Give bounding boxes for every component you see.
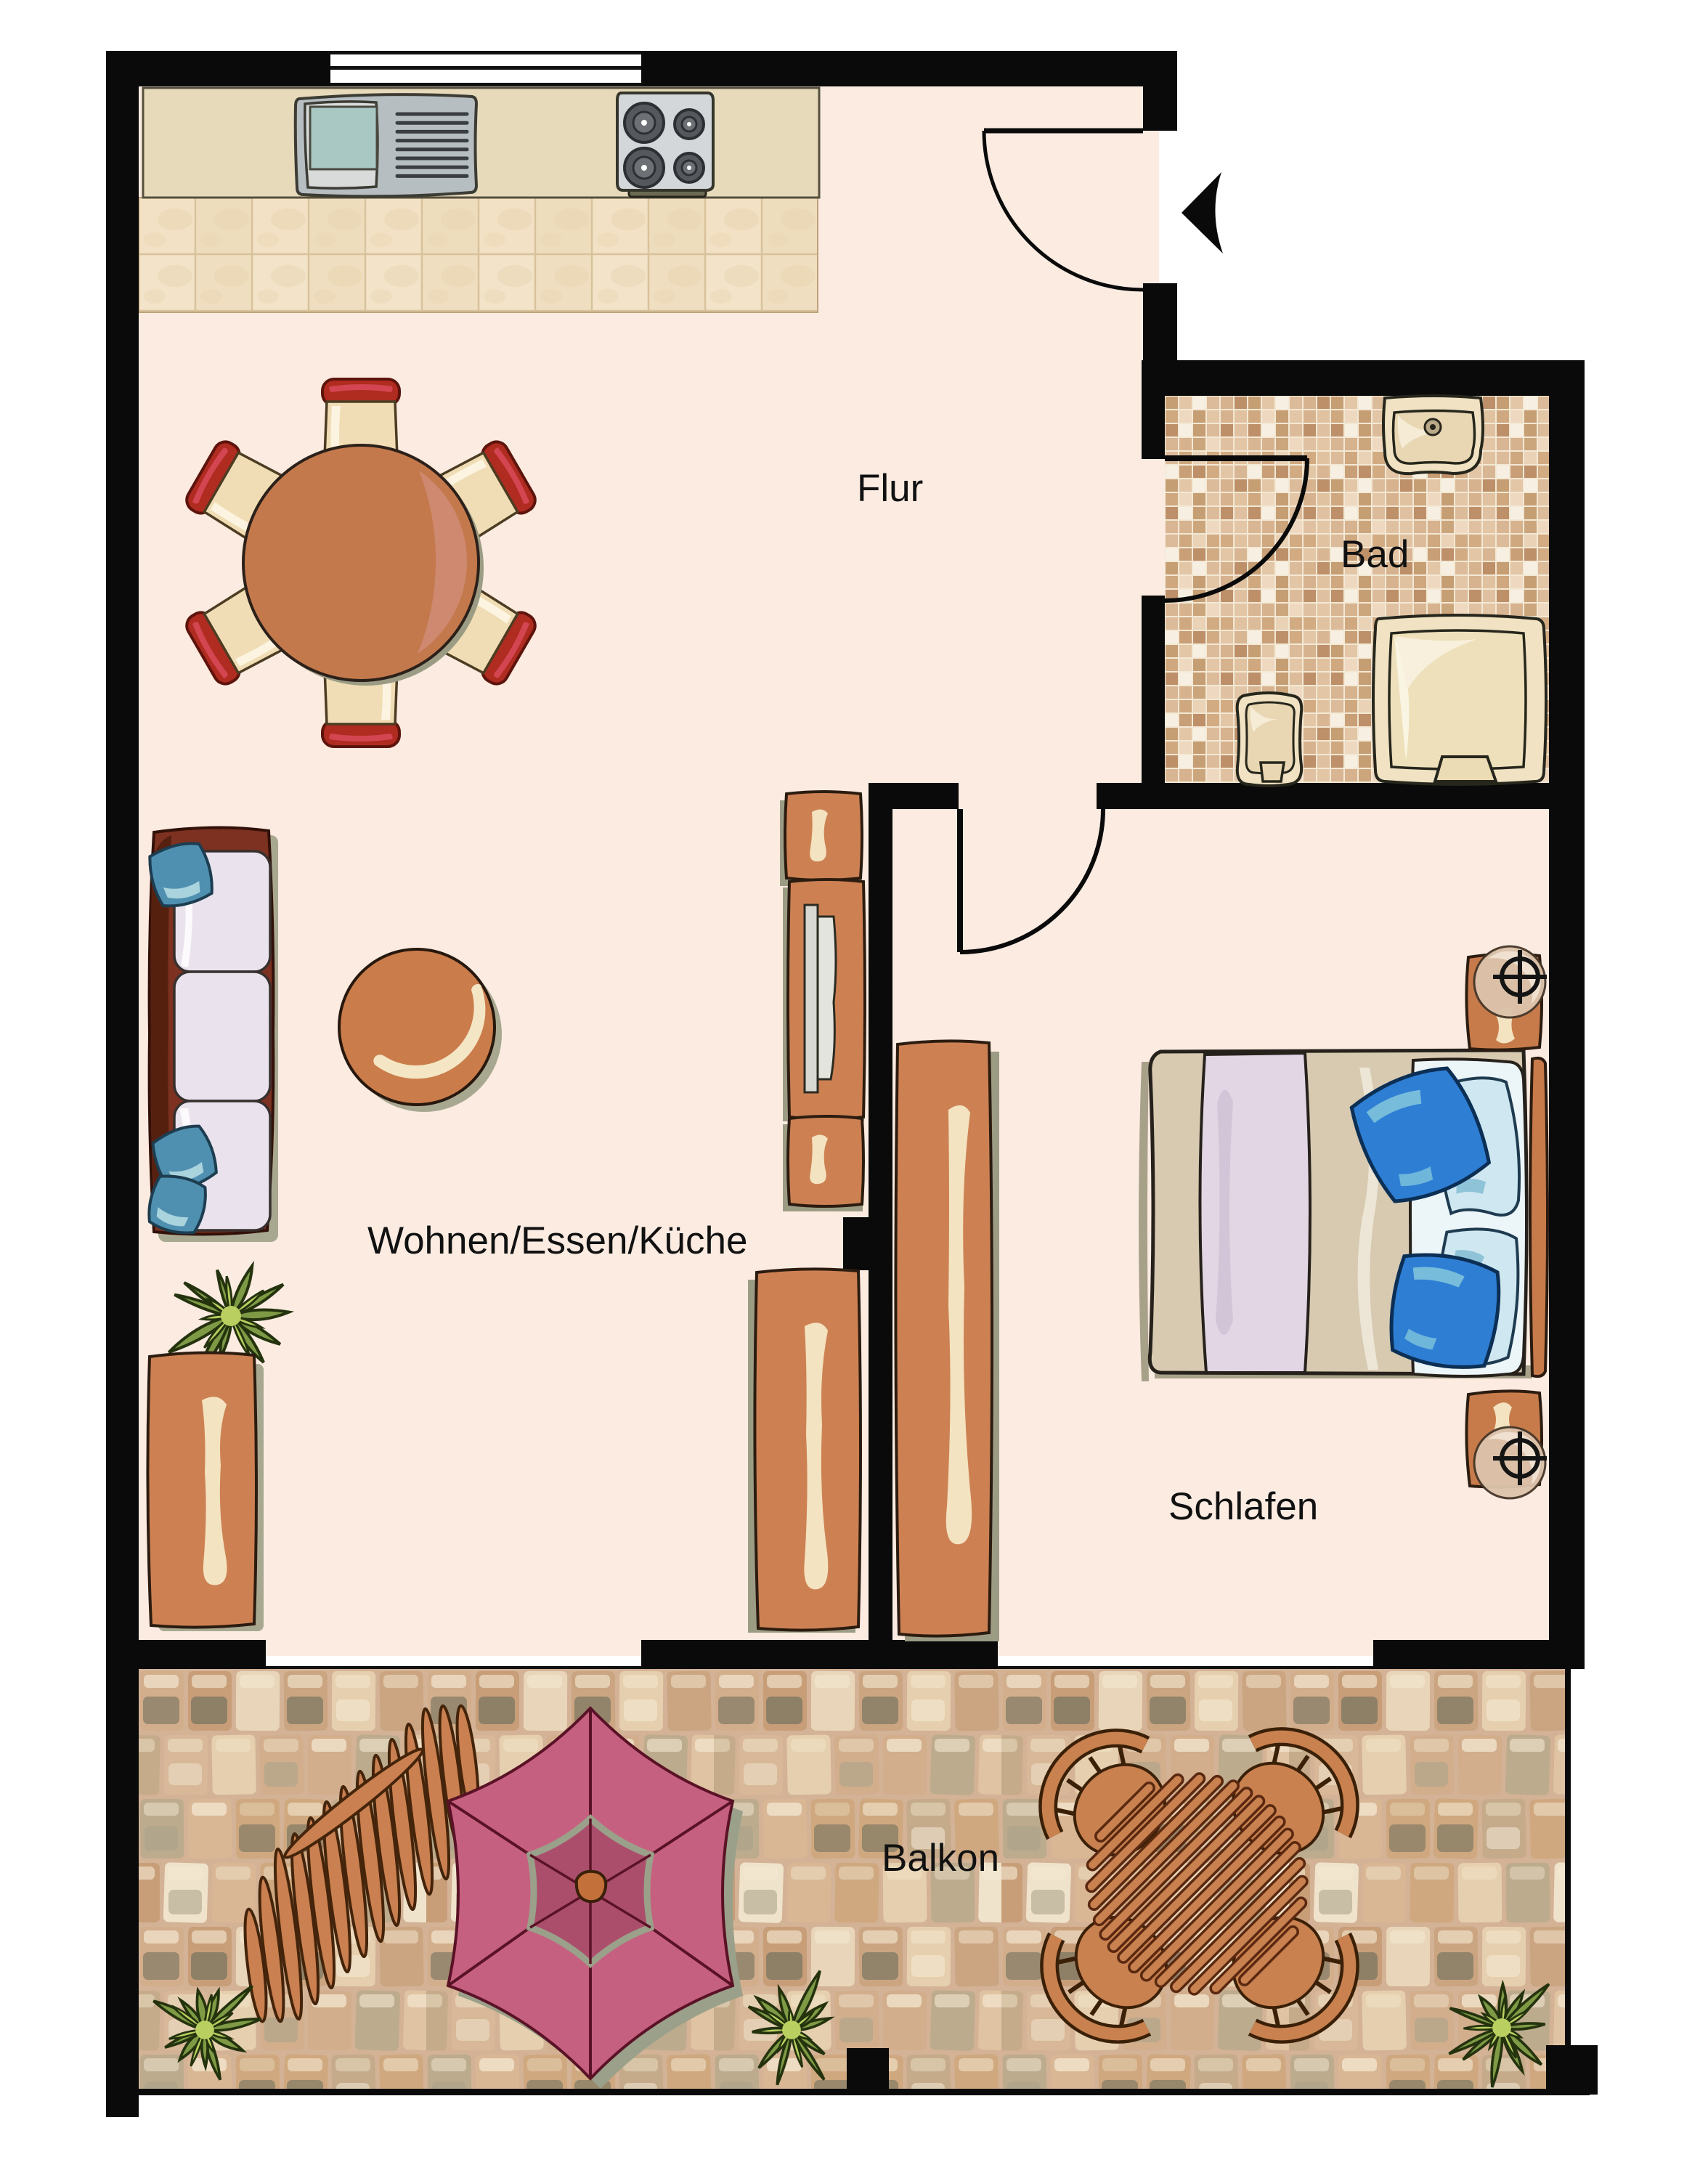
svg-text:Wohnen/Essen/Küche: Wohnen/Essen/Küche <box>367 1219 747 1262</box>
svg-text:Schlafen: Schlafen <box>1168 1485 1318 1528</box>
svg-text:Balkon: Balkon <box>882 1837 999 1880</box>
svg-text:Flur: Flur <box>857 467 923 510</box>
svg-text:Bad: Bad <box>1341 533 1409 576</box>
